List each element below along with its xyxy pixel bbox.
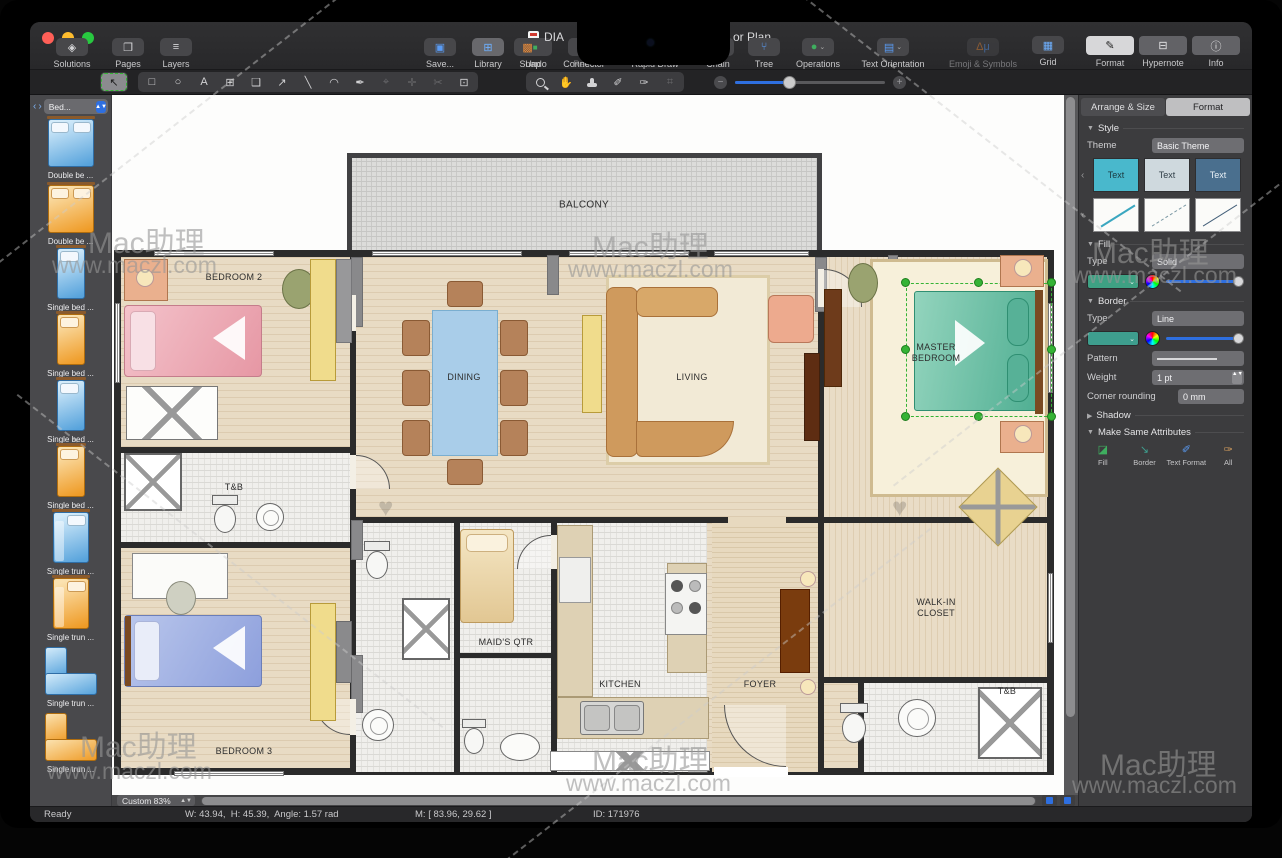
bed-blue[interactable] (124, 615, 262, 687)
shadow-section-header[interactable]: ▶ Shadow (1079, 406, 1252, 423)
magnifier-icon (536, 78, 545, 87)
toilet-bowl (842, 713, 866, 743)
tab-arrange-size[interactable]: Arrange & Size (1081, 98, 1165, 116)
lamp (800, 571, 816, 587)
text-box-tool[interactable]: ⊞ (217, 73, 243, 91)
zoom-slider: − + (714, 76, 906, 89)
lamp (1014, 425, 1032, 443)
dining-chair[interactable] (500, 320, 528, 356)
dining-chair[interactable] (402, 320, 430, 356)
burner (671, 602, 683, 614)
window (714, 251, 809, 256)
eyedropper-tool[interactable]: ✐ (605, 73, 631, 91)
sink[interactable] (256, 503, 284, 531)
library-icon: ⊞ (472, 38, 504, 56)
wardrobe[interactable] (310, 603, 336, 721)
pages-button[interactable]: ❐ Pages (106, 38, 150, 69)
single-bed-icon (57, 446, 85, 497)
text-orientation-icon: ▤⌄ (877, 38, 909, 56)
save-label: Save... (426, 59, 454, 69)
single-bed-icon (57, 248, 85, 299)
lamp (136, 269, 154, 287)
save-icon: ▣ (424, 38, 456, 56)
toilet[interactable] (462, 719, 486, 728)
snap-button[interactable]: ▩■ Snap (508, 38, 552, 69)
library-item-single-trundle-blue[interactable]: Single trun ... (30, 512, 111, 578)
stamp-icon (587, 83, 597, 87)
dining-chair[interactable] (402, 420, 430, 456)
fill-opacity-thumb[interactable] (1233, 276, 1244, 287)
border-opacity-slider[interactable] (1166, 337, 1244, 340)
horizontal-scrollbar[interactable] (201, 797, 1036, 805)
status-ready: Ready (44, 809, 71, 820)
library-prev-icon[interactable]: ‹ (33, 101, 36, 112)
theme-swatch-teal[interactable]: Text (1093, 158, 1139, 192)
format-panel: Arrange & Size Format ▼ Style Theme Basi… (1078, 95, 1252, 806)
sink-basin (614, 705, 640, 731)
library-category-value: Bed... (49, 102, 71, 112)
operations-icon: ●⌄ (802, 38, 834, 56)
kitchen-sink[interactable] (580, 701, 644, 735)
wall (821, 677, 1049, 683)
chair[interactable] (848, 263, 878, 303)
library-label: Library (474, 59, 502, 69)
layers-label: Layers (162, 59, 189, 69)
swatch-prev-icon[interactable]: ‹ (1081, 210, 1088, 221)
callout-tool[interactable]: ❑ (243, 73, 269, 91)
mac-screen: ◈ Solutions ❐ Pages ≡ Layers ▣ Save... (0, 0, 1282, 828)
room-label-kitchen[interactable]: KITCHEN (599, 679, 641, 689)
add-node-tool[interactable]: ✛ (399, 73, 425, 91)
text-orientation-label: Text Orientation (861, 59, 924, 69)
window (115, 303, 120, 383)
pattern-label: Pattern (1087, 353, 1118, 364)
toilet-bowl (464, 728, 484, 754)
disclosure-triangle-icon: ▼ (1087, 429, 1094, 436)
room-label-foyer[interactable]: FOYER (744, 679, 777, 689)
zoom-in-button[interactable]: + (893, 76, 906, 89)
make-same-fill-icon: ◪ (1095, 442, 1111, 456)
toilet-bowl (214, 505, 236, 533)
tree-icon: ⑂ (748, 38, 780, 56)
emoji-symbols-button[interactable]: Δμ Emoji & Symbols (938, 38, 1028, 69)
fridge[interactable] (559, 557, 591, 603)
status-object-id: ID: 171976 (593, 809, 639, 820)
drawing-toolbar: ↖ T □ ○ A ⊞ ❑ ↗ ╲ ◠ ✒ ⌖ ✛ ✂ ⊡ ✋ (30, 70, 1252, 95)
camera-icon (647, 39, 654, 46)
edit-nodes-tool[interactable]: ⌖ (373, 73, 399, 91)
line-tool[interactable]: ╲ (295, 73, 321, 91)
solutions-button[interactable]: ◈ Solutions (42, 38, 102, 69)
border-type-dropdown[interactable]: Line (1152, 311, 1244, 326)
window (174, 771, 284, 776)
document-page[interactable]: BALCONY BEDROOM 2 DINING LIVING MASTER B… (112, 95, 1064, 795)
fill-type-dropdown[interactable]: Solid (1152, 254, 1244, 269)
selection-handle[interactable] (1047, 412, 1056, 421)
hypernote-button[interactable]: ⊟ Hypernote (1137, 36, 1189, 68)
pattern-dropdown[interactable] (1152, 351, 1244, 366)
status-bar: Ready W: 43.94, H: 45.39, Angle: 1.57 ra… (30, 806, 1252, 822)
room-label-bedroom2[interactable]: BEDROOM 2 (206, 272, 263, 282)
pillow (134, 621, 160, 681)
opening-gap (728, 517, 786, 523)
layers-button[interactable]: ≡ Layers (154, 38, 198, 69)
fill-color-wheel-icon[interactable] (1145, 274, 1160, 289)
dining-chair[interactable] (500, 420, 528, 456)
dining-chair[interactable] (447, 281, 483, 307)
wardrobe[interactable] (310, 259, 336, 381)
selection-handle[interactable] (974, 278, 983, 287)
stepper-icon[interactable]: ▲▼ (1232, 372, 1242, 384)
burner (689, 602, 701, 614)
canvas-zoom-dropdown[interactable]: Custom 83% ▲▼ (117, 795, 195, 806)
library-item-single-bed-orange-2[interactable]: Single bed ... (30, 446, 111, 512)
crib[interactable] (126, 386, 218, 440)
arc-tool[interactable]: ◠ (321, 73, 347, 91)
bed-tan[interactable] (460, 529, 514, 623)
tree-label: Tree (755, 59, 773, 69)
foyer-cabinet[interactable] (780, 589, 810, 673)
rectangle-tool[interactable]: □ (139, 73, 165, 91)
toilet[interactable] (212, 495, 238, 505)
toilet-bowl (366, 551, 388, 579)
l-trundle-bed-icon (45, 647, 97, 695)
library-item-single-bed-blue-2[interactable]: Single bed ... (30, 380, 111, 446)
stove[interactable] (665, 573, 707, 635)
line-style-swatch-thin[interactable] (1195, 198, 1241, 232)
pillow (130, 311, 156, 371)
shower[interactable] (124, 453, 182, 511)
fill-opacity-slider[interactable] (1166, 280, 1244, 283)
weight-label: Weight (1087, 372, 1116, 383)
single-bed-icon (57, 380, 85, 431)
tv-console[interactable] (804, 353, 820, 441)
pan-tool[interactable]: ✋ (553, 73, 579, 91)
disclosure-triangle-icon: ▼ (1087, 298, 1094, 305)
info-button[interactable]: ⓘ Info (1190, 36, 1242, 68)
blanket-fold (213, 316, 245, 360)
library-item-partial[interactable] (30, 776, 111, 806)
make-same-all-icon: ✑ (1220, 442, 1236, 456)
burner (671, 580, 683, 592)
tree-button[interactable]: ⑂ Tree (742, 38, 786, 69)
room-label-tb-lower[interactable]: T&B (998, 686, 1016, 696)
pen-tool[interactable]: ✒ (347, 73, 373, 91)
status-mouse-coords: M: [ 83.96, 29.62 ] (415, 809, 492, 820)
library-item-single-trundle-l-orange[interactable]: Single trun ... (30, 710, 111, 776)
library-item-single-trundle-l-blue[interactable]: Single trun ... (30, 644, 111, 710)
operations-button[interactable]: ●⌄ Operations (788, 38, 848, 69)
pillow (466, 534, 508, 552)
info-icon: ⓘ (1192, 36, 1240, 55)
snap-label: Snap (519, 59, 540, 69)
pages-label: Pages (115, 59, 141, 69)
headboard (125, 616, 131, 686)
format-painter-tool[interactable]: ✑ (631, 73, 657, 91)
emoji-symbols-icon: Δμ (967, 38, 999, 56)
select-tool[interactable]: ↖ (101, 73, 127, 91)
layers-icon: ≡ (160, 38, 192, 56)
solutions-icon: ◈ (56, 38, 88, 56)
window (372, 251, 522, 256)
room-label-bedroom3[interactable]: BEDROOM 3 (216, 746, 273, 756)
style-section-header[interactable]: ▼ Style (1079, 119, 1252, 136)
selection-handle[interactable] (901, 278, 910, 287)
trundle-bed-icon (53, 578, 89, 629)
shower[interactable] (402, 598, 450, 660)
library-category-dropdown[interactable]: Bed... ▲▼ (44, 99, 108, 114)
selection-handle[interactable] (1047, 278, 1056, 287)
cabinet[interactable] (336, 259, 352, 343)
page-prev-button[interactable] (1042, 795, 1057, 806)
arrow-tool[interactable]: ↗ (269, 73, 295, 91)
theme-label: Theme (1087, 140, 1117, 151)
room-label-maid[interactable]: MAID'S QTR (479, 637, 534, 647)
floor-plan: BALCONY BEDROOM 2 DINING LIVING MASTER B… (114, 153, 1058, 781)
library-item-single-bed-blue[interactable]: Single bed ... (30, 248, 111, 314)
service-hatch (550, 751, 710, 771)
zoom-slider-thumb[interactable] (783, 76, 796, 89)
camera-notch (577, 20, 730, 65)
fill-color-well[interactable]: ⌄ (1087, 274, 1139, 289)
room-label-balcony[interactable]: BALCONY (559, 200, 609, 211)
solutions-label: Solutions (53, 59, 90, 69)
cabinet[interactable] (336, 621, 352, 683)
zoom-out-button[interactable]: − (714, 76, 727, 89)
disclosure-triangle-icon: ▼ (1087, 241, 1094, 248)
l-trundle-bed-icon (45, 713, 97, 761)
library-item-single-trundle-orange[interactable]: Single trun ... (30, 578, 111, 644)
grid-label: Grid (1039, 57, 1056, 67)
library-item-double-bed-blue[interactable]: Double be ... (30, 116, 111, 182)
weight-stepper[interactable]: 1 pt▲▼ (1152, 370, 1244, 385)
zoom-tool[interactable] (527, 73, 553, 91)
make-same-border-icon: ↘ (1137, 442, 1153, 456)
dining-chair[interactable] (402, 370, 430, 406)
swatch-prev-icon[interactable]: ‹ (1081, 170, 1088, 181)
armchair[interactable] (768, 295, 814, 343)
crop-tool[interactable]: ⌗ (657, 73, 683, 91)
snap-icon: ▩■ (514, 38, 546, 56)
column (547, 255, 559, 295)
vertical-scrollbar[interactable] (1064, 95, 1078, 795)
single-bed-icon (57, 314, 85, 365)
dresser[interactable] (824, 289, 842, 387)
console-table[interactable] (582, 315, 602, 413)
make-same-text-format-button[interactable]: ✐ Text Format (1168, 442, 1204, 467)
cut-node-tool[interactable]: ✂ (425, 73, 451, 91)
save-button[interactable]: ▣ Save... (418, 38, 462, 69)
selection-handle[interactable] (974, 412, 983, 421)
library-button[interactable]: ⊞ Library (466, 38, 510, 69)
theme-dropdown[interactable]: Basic Theme (1152, 138, 1244, 153)
page-setup-tool[interactable]: ⊡ (451, 73, 477, 91)
library-item-double-bed-orange[interactable]: Double be ... (30, 182, 111, 248)
sofa-back[interactable] (606, 287, 638, 457)
grid-icon: ▦ (1032, 36, 1064, 54)
zoom-stepper-icon: ▲▼ (180, 798, 192, 804)
entry-door-gap (714, 767, 788, 777)
line-style-swatch-dashed[interactable] (1144, 198, 1190, 232)
fill-section-header[interactable]: ▼ Fill (1079, 235, 1252, 252)
line-style-swatch-solid[interactable] (1093, 198, 1139, 232)
theme-swatch-dark[interactable]: Text (1195, 158, 1241, 192)
toilet[interactable] (840, 703, 868, 713)
blanket-fold (213, 626, 245, 670)
window (569, 251, 689, 256)
horizontal-scroll-row: Custom 83% ▲▼ (112, 795, 1078, 806)
border-color-well[interactable]: ⌄ (1087, 331, 1139, 346)
room-label-dining[interactable]: DINING (447, 372, 480, 382)
tab-format[interactable]: Format (1166, 98, 1250, 116)
border-section-header[interactable]: ▼ Border (1079, 292, 1252, 309)
library-next-icon[interactable]: › (38, 101, 41, 112)
format-button[interactable]: ✎ Format (1084, 36, 1136, 68)
drawing-canvas[interactable]: BALCONY BEDROOM 2 DINING LIVING MASTER B… (112, 95, 1078, 806)
bed-pink[interactable] (124, 305, 262, 377)
border-opacity-thumb[interactable] (1233, 333, 1244, 344)
wall (121, 542, 353, 548)
text-tool[interactable]: A (191, 73, 217, 91)
dropdown-stepper-icon: ▲▼ (96, 101, 106, 113)
column (351, 520, 363, 560)
theme-swatch-light[interactable]: Text (1144, 158, 1190, 192)
make-same-border-button[interactable]: ↘ Border (1127, 442, 1163, 467)
dining-table[interactable] (432, 310, 498, 456)
stamp-tool[interactable] (579, 73, 605, 91)
operations-label: Operations (796, 59, 840, 69)
fill-type-label: Type (1087, 256, 1108, 267)
trundle-bed-icon (53, 512, 89, 563)
library-item-single-bed-orange[interactable]: Single bed ... (30, 314, 111, 380)
make-same-fill-button[interactable]: ◪ Fill (1085, 442, 1121, 467)
sink-basin (584, 705, 610, 731)
canvas-zoom-value: Custom 83% (122, 796, 171, 806)
burner (689, 580, 701, 592)
zoom-slider-track[interactable] (735, 81, 885, 84)
zoom-slider-fill (735, 81, 786, 84)
text-orientation-button[interactable]: ▤⌄ Text Orientation (850, 38, 936, 69)
status-dimensions: W: 43.94, H: 45.39, Angle: 1.57 rad (185, 809, 339, 820)
corner-rounding-label: Corner rounding (1087, 391, 1156, 402)
room-label-closet[interactable]: WALK-IN CLOSET (897, 597, 975, 620)
sink[interactable] (898, 699, 936, 737)
dining-chair[interactable] (447, 459, 483, 485)
sink[interactable] (362, 709, 394, 741)
selection-handle[interactable] (1047, 345, 1056, 354)
vertical-scroll-thumb[interactable] (1066, 97, 1075, 717)
disclosure-triangle-icon: ▶ (1087, 412, 1092, 420)
shower[interactable] (978, 687, 1042, 759)
dining-chair[interactable] (500, 370, 528, 406)
window (1048, 573, 1053, 643)
door-gap (350, 699, 356, 735)
room-label-living[interactable]: LIVING (676, 372, 707, 382)
kitchen-counter[interactable] (557, 525, 593, 697)
toilet[interactable] (364, 541, 390, 551)
double-bed-icon (48, 185, 94, 233)
hypernote-icon: ⊟ (1139, 36, 1187, 55)
format-icon: ✎ (1086, 36, 1134, 55)
make-same-attributes-header[interactable]: ▼ Make Same Attributes (1079, 423, 1252, 440)
ellipse-tool[interactable]: ○ (165, 73, 191, 91)
emoji-symbols-label: Emoji & Symbols (949, 59, 1017, 69)
border-color-wheel-icon[interactable] (1145, 331, 1160, 346)
page-next-button[interactable] (1060, 795, 1075, 806)
room-label-tb-upper[interactable]: T&B (225, 482, 243, 492)
room-label-master[interactable]: MASTER BEDROOM (897, 342, 975, 365)
make-same-all-button[interactable]: ✑ All (1210, 442, 1246, 467)
double-bed-icon (48, 119, 94, 167)
corner-rounding-field[interactable]: 0 mm (1178, 389, 1244, 404)
selection-handle[interactable] (901, 412, 910, 421)
disclosure-triangle-icon: ▼ (1087, 125, 1094, 132)
lamp (1014, 259, 1032, 277)
border-type-label: Type (1087, 313, 1108, 324)
sofa-arm[interactable] (636, 287, 718, 317)
library-sidebar: ‹ › Bed... ▲▼ Double be ... Double be ..… (30, 95, 112, 806)
hypernote-label: Hypernote (1142, 58, 1184, 68)
grid-button[interactable]: ▦ Grid (1026, 36, 1070, 67)
make-same-text-format-icon: ✐ (1178, 442, 1194, 456)
sink-oval[interactable] (500, 733, 540, 761)
pages-icon: ❐ (112, 38, 144, 56)
horizontal-scroll-thumb[interactable] (202, 797, 1035, 805)
app-window: ◈ Solutions ❐ Pages ≡ Layers ▣ Save... (30, 22, 1252, 822)
window (154, 251, 274, 256)
chair[interactable] (166, 581, 196, 615)
lamp (800, 679, 816, 695)
format-label: Format (1096, 58, 1125, 68)
wall (457, 653, 554, 658)
info-label: Info (1208, 58, 1223, 68)
